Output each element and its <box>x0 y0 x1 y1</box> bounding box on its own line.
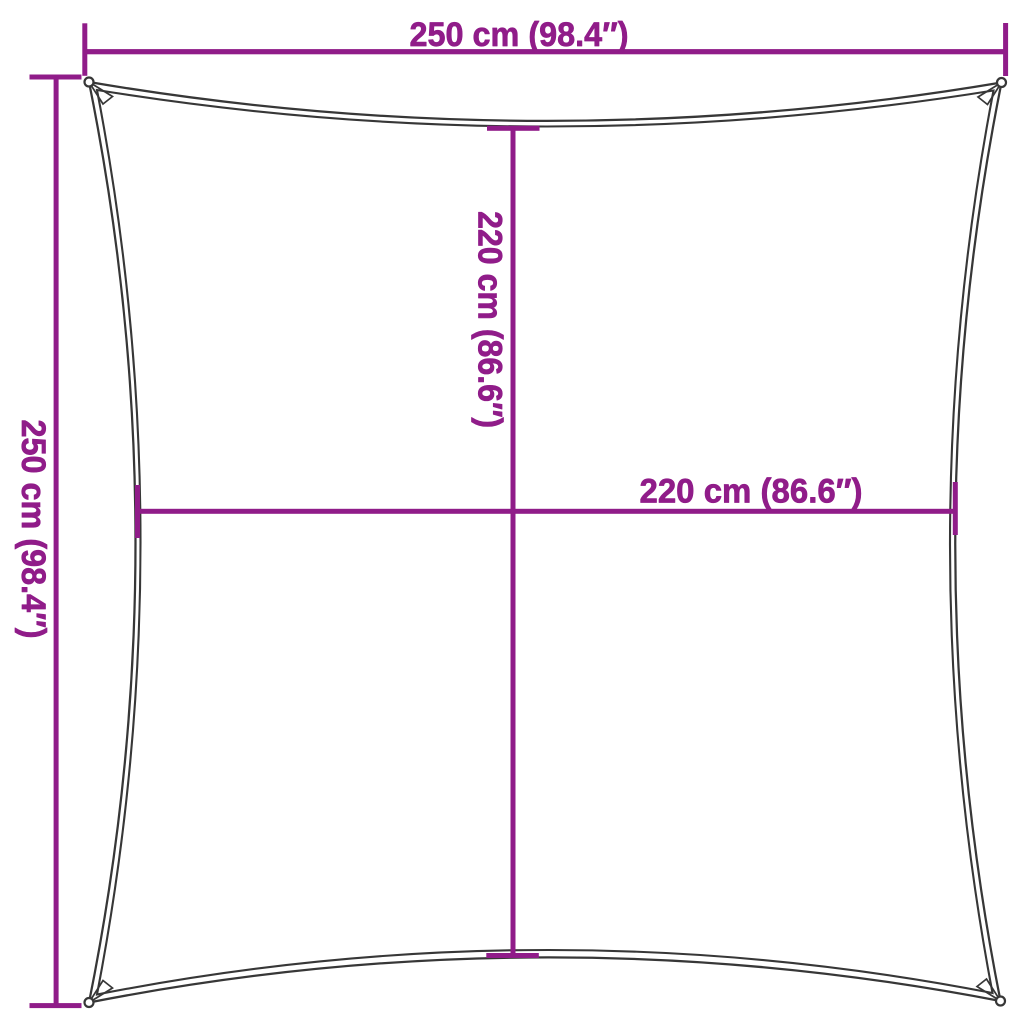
svg-text:250 cm (98.4″): 250 cm (98.4″) <box>410 16 629 54</box>
svg-text:220 cm (86.6″): 220 cm (86.6″) <box>470 211 508 428</box>
svg-text:220 cm (86.6″): 220 cm (86.6″) <box>640 473 863 511</box>
svg-text:250 cm (98.4″): 250 cm (98.4″) <box>14 420 52 639</box>
